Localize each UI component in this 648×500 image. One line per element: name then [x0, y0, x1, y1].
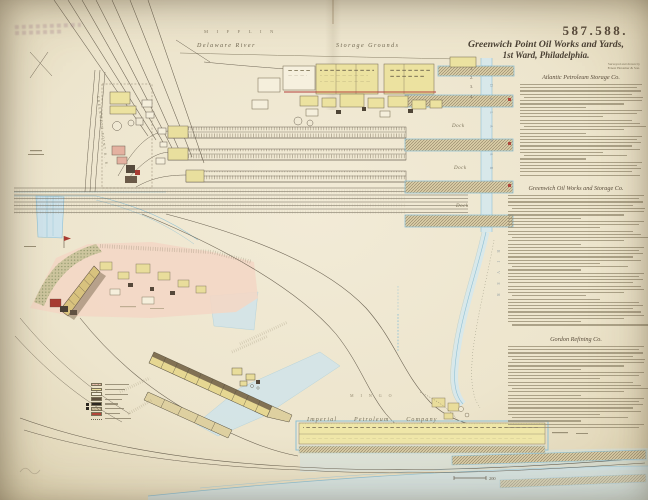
legend-swatch [91, 412, 102, 416]
credit-lines: Surveyed and drawn by Ernest Hexamer & S… [540, 62, 640, 71]
pier-number: 2. [470, 73, 473, 82]
section-heading-3: Gordon Refining Co. [508, 336, 644, 343]
text-section-3: Gordon Refining Co. [508, 336, 644, 430]
legend-swatch [91, 417, 102, 421]
map-title-line1: Greenwich Point Oil Works and Yards, [440, 39, 648, 50]
credit-line-2: Ernest Hexamer & Son. [540, 66, 640, 70]
section-body-2 [508, 195, 644, 326]
pier-number: 3. [470, 82, 473, 91]
street-label-top: MIFFLIN [204, 29, 282, 34]
library-stamp [15, 23, 81, 39]
plate-number: 587.588. [500, 23, 628, 39]
legend-swatch [91, 392, 102, 396]
scale-value: 200 [489, 476, 496, 481]
legend-swatch [91, 388, 102, 392]
river-label-top: Delaware River [196, 43, 256, 49]
map-title-line2: 1st Ward, Philadelphia. [440, 50, 648, 60]
dock-label-3: Dock [455, 204, 469, 209]
company-label-bottom: Imperial Petroleum Company [306, 417, 438, 423]
map-sheet: MIFFLIN Delaware River Storage Grounds D… [0, 0, 648, 500]
section-body-1 [520, 84, 642, 176]
pier-numbers: 1.2.3.4. [470, 64, 473, 101]
legend-swatch [91, 397, 102, 401]
section-body-3 [508, 346, 644, 428]
legend-item [86, 416, 131, 421]
section-heading-1: Atlantic Petroleum Storage Co. [520, 74, 642, 81]
legend-swatch [91, 407, 102, 411]
river-label-vertical-1: DELAWARE [489, 84, 494, 194]
street-label-bottom: MINGO [350, 393, 399, 398]
river-label-vertical-2: RIVER [496, 250, 501, 305]
storage-grounds-label: Storage Grounds [336, 43, 399, 49]
text-section-1: Atlantic Petroleum Storage Co. [520, 74, 642, 178]
text-section-2: Greenwich Oil Works and Storage Co. [508, 185, 644, 328]
map-title: Greenwich Point Oil Works and Yards, 1st… [440, 39, 648, 60]
dock-label-2: Dock [453, 166, 467, 171]
pier-number: 4. [470, 92, 473, 101]
dock-label-1: Dock [451, 124, 465, 129]
pier-number: 1. [470, 64, 473, 73]
legend-swatch [91, 402, 102, 406]
map-legend [86, 382, 131, 421]
section-heading-2: Greenwich Oil Works and Storage Co. [508, 185, 644, 192]
legend-swatch [91, 383, 102, 387]
